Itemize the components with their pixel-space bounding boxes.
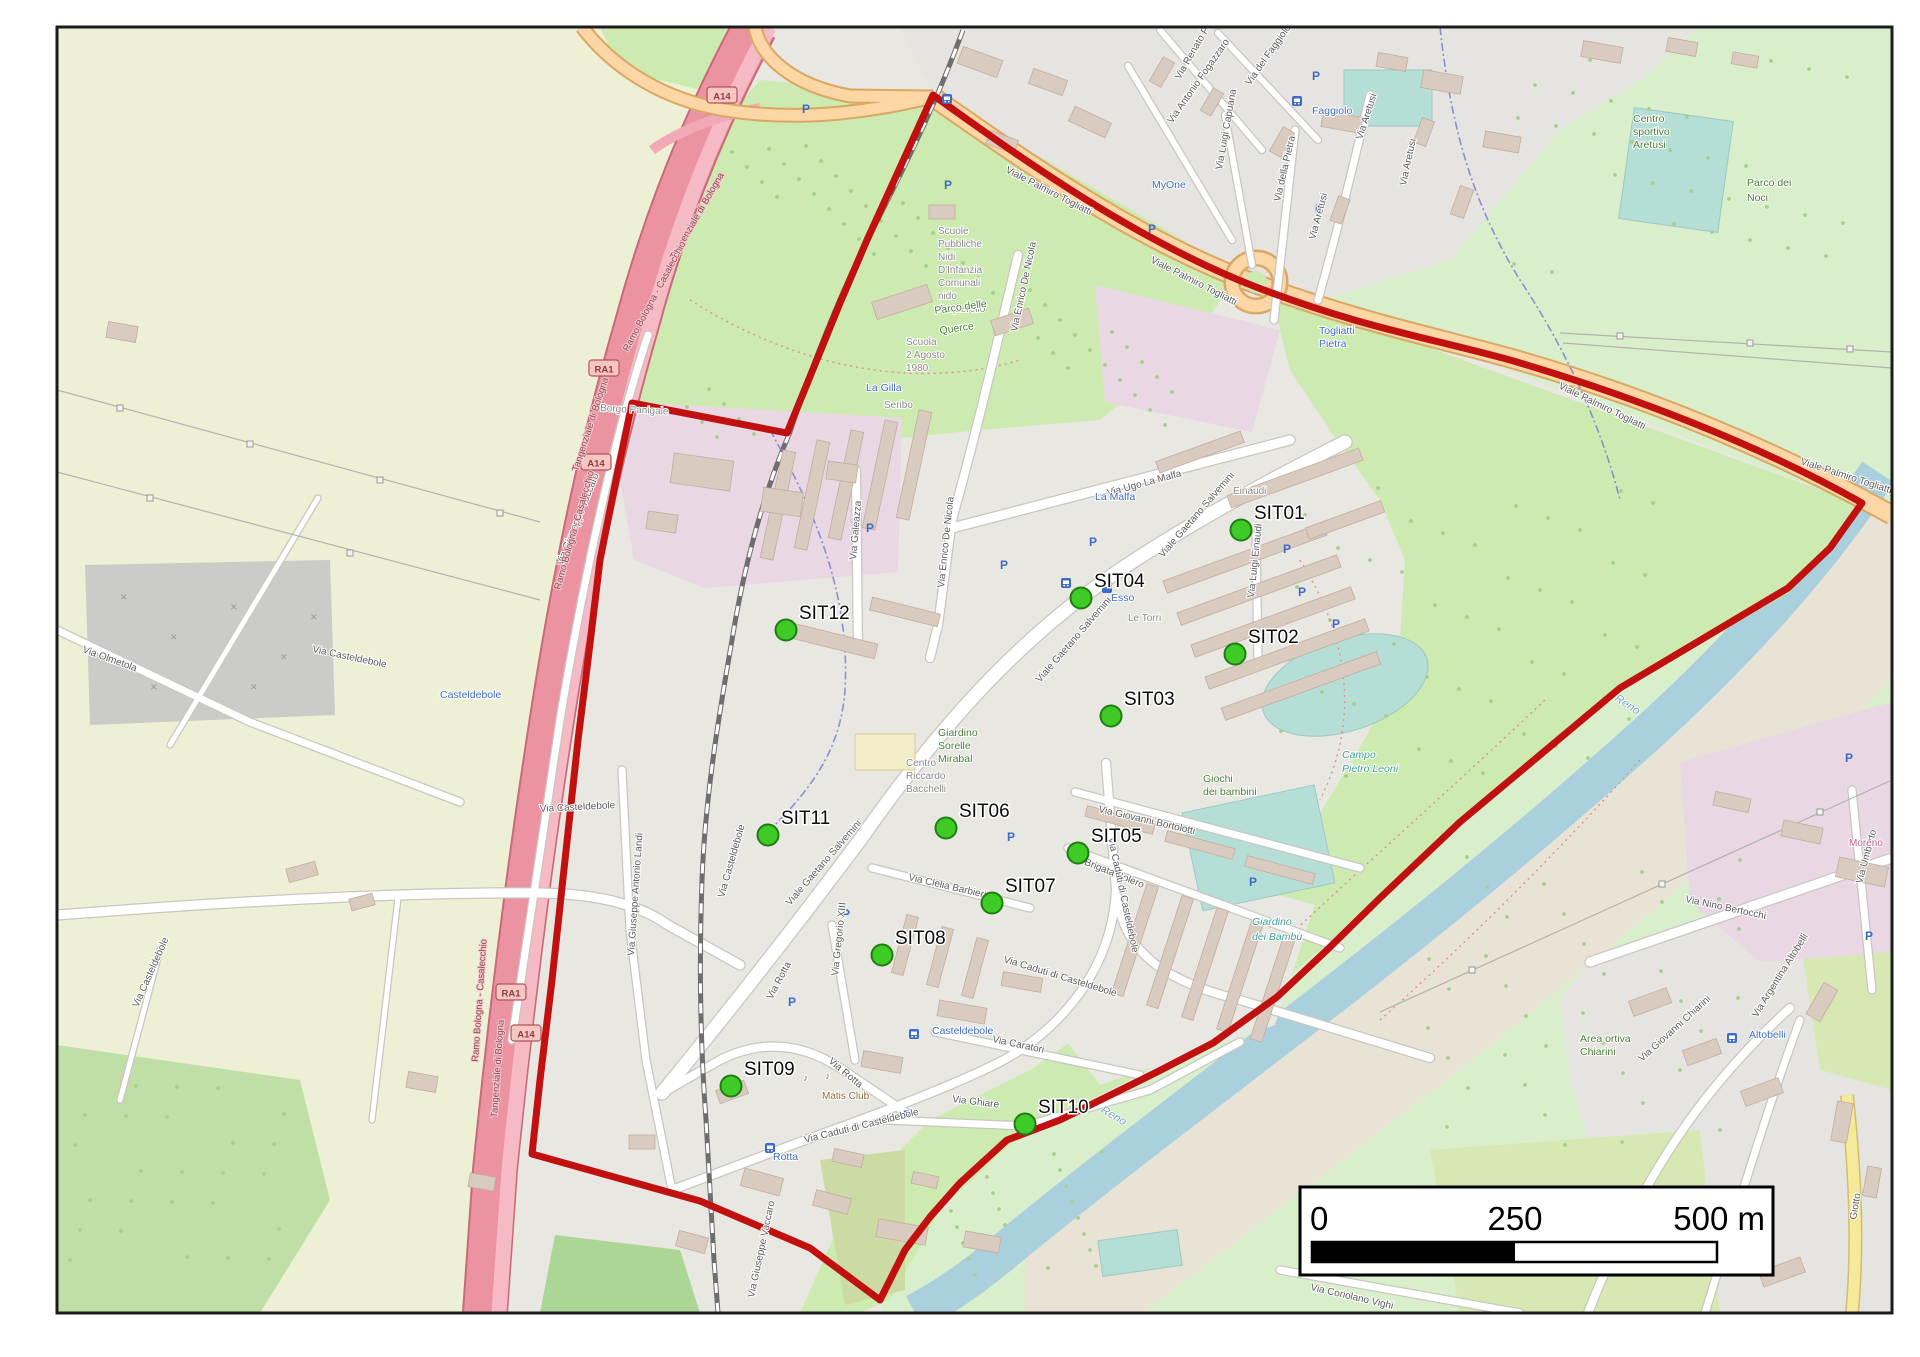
road-shield-label: A14 — [587, 459, 605, 470]
map-label: Mirabal — [938, 753, 972, 765]
site-marker-label: SIT03 — [1124, 689, 1175, 710]
quarry-mark-icon: ✕ — [170, 632, 178, 642]
map-label: La Gilla — [866, 382, 902, 394]
site-marker-label: SIT07 — [1005, 876, 1056, 897]
map-label: Togliatti — [1319, 325, 1355, 337]
map-label: Moreno — [1849, 838, 1883, 849]
map-label: Matis Club — [822, 1091, 870, 1102]
road-shield-label: A14 — [517, 1030, 535, 1041]
parking-icon: P — [1298, 585, 1306, 599]
map-label: Einaudi — [1233, 486, 1266, 497]
map-label: Pietro Leoni — [1342, 763, 1399, 775]
parking-icon: P — [1007, 830, 1015, 844]
quarry-mark-icon: ✕ — [150, 682, 158, 692]
scale-tick-0: 0 — [1310, 1200, 1328, 1237]
site-marker-label: SIT10 — [1038, 1097, 1089, 1118]
parking-icon: P — [944, 178, 952, 192]
parking-icon: P — [1089, 535, 1097, 549]
quarry-mark-icon: ✕ — [310, 612, 318, 622]
map-label: Chiarini — [1580, 1046, 1616, 1058]
map-label: Centro — [906, 758, 936, 769]
map-label: Riccardo — [906, 771, 946, 782]
site-marker-label: SIT11 — [781, 808, 830, 829]
map-label: MyOne — [1152, 179, 1186, 191]
site-marker-label: SIT05 — [1091, 826, 1142, 847]
map-label: Rotta — [773, 1151, 798, 1163]
map-label: nido — [938, 291, 957, 302]
road-shield-label: A14 — [713, 92, 731, 103]
map-label: Casteldebole — [932, 1025, 993, 1037]
map-label: Altobelli — [1749, 1029, 1786, 1041]
site-marker-label: SIT08 — [895, 928, 946, 949]
site-marker-label: SIT09 — [744, 1059, 795, 1080]
parking-icon: P — [788, 995, 796, 1009]
site-marker-SIT12 — [776, 620, 797, 641]
map-content: ✕✕✕✕✕✕✕PPPPPPPPPPPPPPPPPP♪♪A14A14A14RA1R… — [57, 8, 1915, 1313]
map-label: Faggiolo — [1312, 105, 1352, 117]
map-label: Bacchelli — [906, 784, 946, 795]
map-label: Centro — [1633, 113, 1665, 125]
site-marker-SIT03 — [1101, 706, 1122, 727]
site-marker-label: SIT12 — [799, 603, 850, 624]
site-marker-SIT11 — [758, 825, 779, 846]
map-canvas: ✕✕✕✕✕✕✕PPPPPPPPPPPPPPPPPP♪♪A14A14A14RA1R… — [0, 0, 1920, 1357]
scale-bar-filled — [1312, 1242, 1515, 1262]
map-label: Aretusi — [1633, 139, 1666, 151]
map-label: Scuole — [938, 226, 969, 237]
map-label: Scuola — [906, 337, 937, 348]
site-marker-SIT04 — [1071, 588, 1092, 609]
map-label: Pietra — [1319, 338, 1347, 350]
map-label: Giardino — [938, 727, 978, 739]
map-label: Parco dei — [1747, 177, 1791, 189]
map-label: Pubbliche — [938, 239, 982, 250]
map-figure: ✕✕✕✕✕✕✕PPPPPPPPPPPPPPPPPP♪♪A14A14A14RA1R… — [0, 0, 1920, 1357]
parking-icon: P — [1845, 751, 1853, 765]
scale-bar: 0 250 500 m — [1300, 1187, 1773, 1275]
map-label: Casteldebole — [440, 689, 501, 701]
site-marker-label: SIT01 — [1254, 503, 1305, 524]
map-label: La Malfa — [1095, 491, 1135, 503]
map-label: 2 Agosto — [906, 350, 945, 361]
map-label: Area ortiva — [1580, 1033, 1631, 1045]
parking-icon: P — [1283, 542, 1291, 556]
parking-icon: P — [1332, 617, 1340, 631]
map-label: Comunali — [938, 278, 980, 289]
road-shield-label: RA1 — [501, 989, 521, 1000]
parking-icon: P — [1312, 69, 1320, 83]
scale-tick-500: 500 m — [1673, 1200, 1765, 1237]
map-label: sportivo — [1633, 126, 1670, 138]
map-label: Sorelle — [938, 740, 971, 752]
map-label: D'Infanzia — [938, 265, 983, 276]
parking-icon: P — [866, 521, 874, 535]
site-marker-SIT05 — [1068, 843, 1089, 864]
map-label: Campo — [1342, 749, 1376, 761]
parking-icon: P — [1000, 558, 1008, 572]
road-shield-label: RA1 — [594, 365, 614, 376]
quarry-mark-icon: ✕ — [280, 652, 288, 662]
site-marker-SIT08 — [872, 945, 893, 966]
site-marker-SIT06 — [936, 818, 957, 839]
parking-icon: P — [1249, 875, 1257, 889]
site-marker-label: SIT02 — [1248, 627, 1299, 648]
map-label: Le Torri — [1128, 613, 1161, 624]
map-label: Noci — [1747, 192, 1768, 204]
site-marker-SIT07 — [982, 893, 1003, 914]
music-note-icon: ♪ — [803, 1073, 808, 1084]
map-label: dei bambini — [1203, 786, 1257, 798]
scale-tick-250: 250 — [1487, 1200, 1542, 1237]
quarry-mark-icon: ✕ — [120, 592, 128, 602]
site-marker-SIT01 — [1231, 520, 1252, 541]
parking-icon: P — [802, 102, 810, 116]
site-marker-SIT10 — [1015, 1114, 1036, 1135]
map-label: Esso — [1111, 592, 1135, 604]
music-note-icon: ♪ — [825, 1071, 830, 1082]
map-label: Nidi — [938, 252, 955, 263]
map-label: 1980 — [906, 363, 929, 374]
site-marker-SIT09 — [721, 1076, 742, 1097]
map-label: Giochi — [1203, 773, 1233, 785]
quarry-mark-icon: ✕ — [250, 682, 258, 692]
map-label: Seribo — [884, 400, 913, 411]
map-label: Giardino — [1252, 916, 1292, 928]
parking-icon: P — [1148, 222, 1156, 236]
map-label: dei Bambù — [1252, 931, 1302, 943]
site-marker-label: SIT04 — [1094, 571, 1145, 592]
quarry-mark-icon: ✕ — [230, 602, 238, 612]
parking-icon: P — [1865, 929, 1873, 943]
site-marker-label: SIT06 — [959, 801, 1010, 822]
site-marker-SIT02 — [1225, 644, 1246, 665]
